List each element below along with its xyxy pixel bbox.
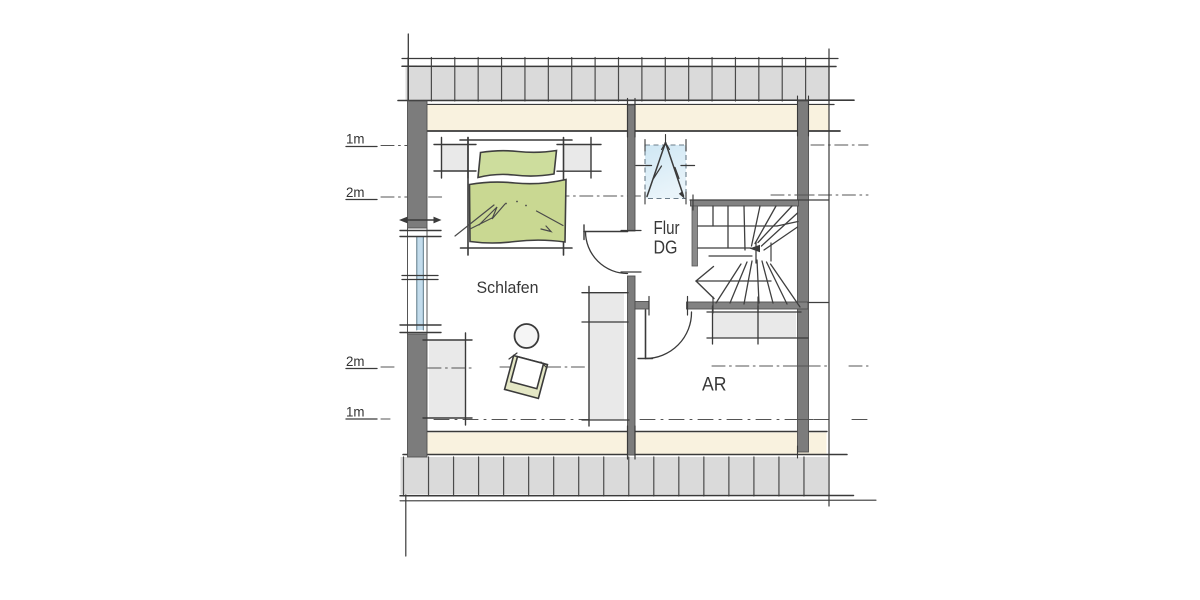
svg-text:1m: 1m <box>346 404 365 420</box>
svg-text:1m: 1m <box>346 131 365 147</box>
svg-text:DG: DG <box>654 238 678 258</box>
svg-text:AR: AR <box>702 375 727 396</box>
svg-text:2m: 2m <box>346 184 365 200</box>
svg-text:Schlafen: Schlafen <box>477 278 539 297</box>
svg-text:Flur: Flur <box>654 218 680 238</box>
svg-text:2m: 2m <box>346 353 365 369</box>
